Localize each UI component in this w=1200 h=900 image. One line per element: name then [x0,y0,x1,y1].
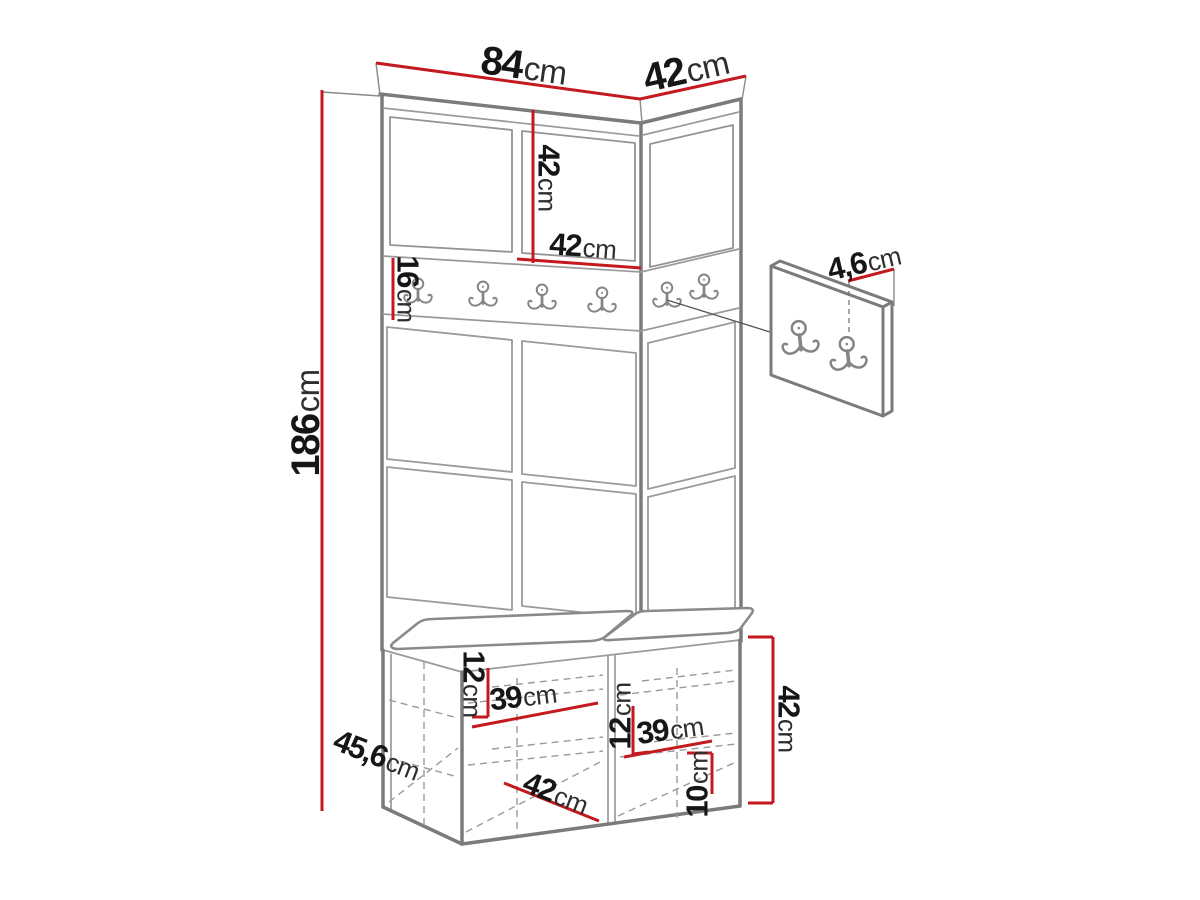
top-cabinet-doors [390,117,733,267]
bench [383,640,740,844]
coat-hook-icon [404,279,431,303]
coat-hook-icon [528,285,555,309]
coat-hook-icon [690,275,717,299]
seat-cushion [391,611,632,649]
wardrobe-outline [380,94,741,650]
bench-cushions [391,608,753,649]
coat-hook-icon [469,282,496,306]
coat-hook-icon [588,288,615,312]
dimension-diagram: 84cm 42cm 42cm 42cm 16cm 186cm 4,6cm 12c… [0,0,1200,900]
upholstered-panels [387,322,735,631]
callout-line [667,300,786,337]
furniture-drawing [0,0,1200,900]
rail-hooks [404,275,717,312]
